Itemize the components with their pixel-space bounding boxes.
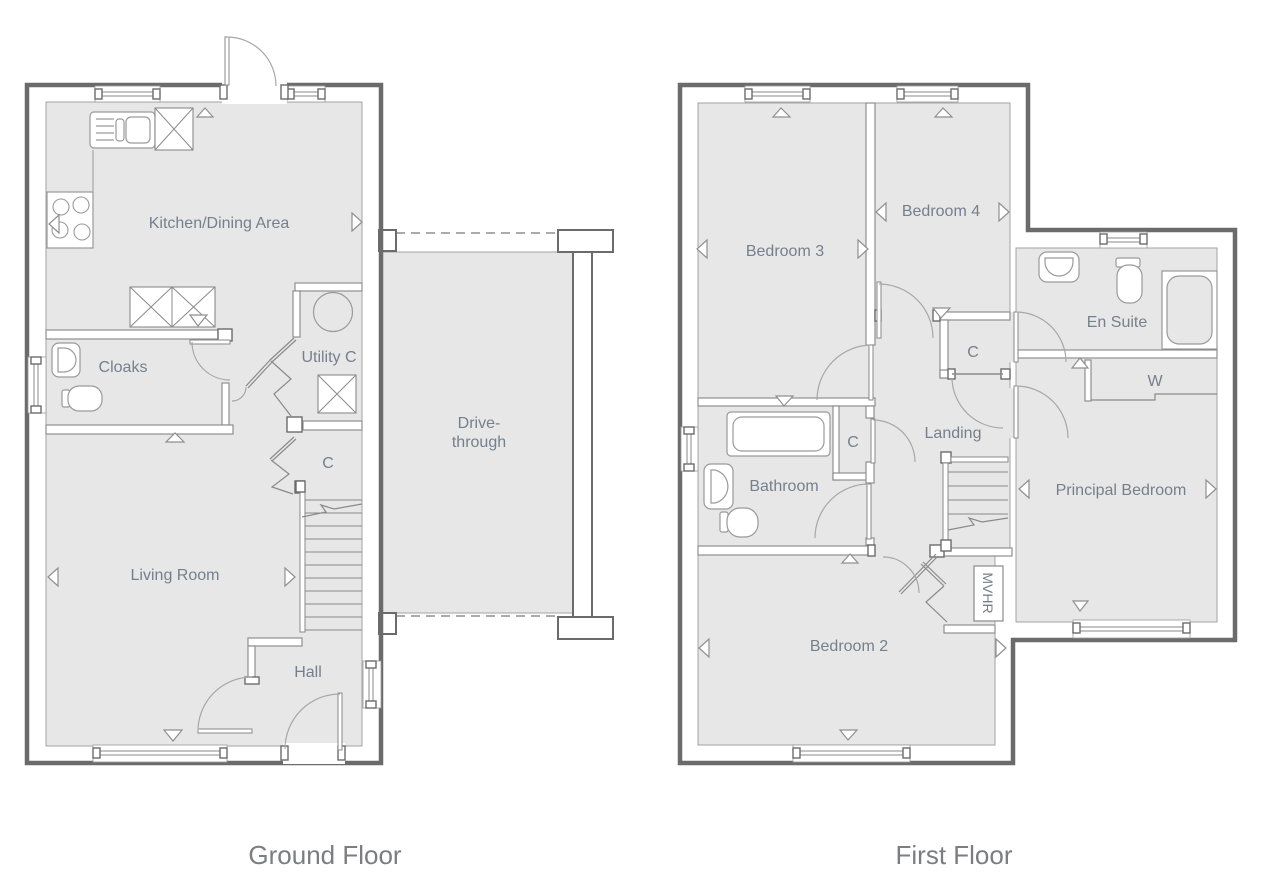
utility-label: Utility C bbox=[301, 349, 356, 366]
first-floor-plan: MVHR bbox=[680, 85, 1235, 870]
bedroom3-label: Bedroom 3 bbox=[746, 243, 824, 260]
shower-icon bbox=[1162, 271, 1217, 349]
ensuite-label: En Suite bbox=[1087, 314, 1148, 331]
principal-bedroom-window bbox=[1073, 620, 1190, 638]
living-room-window bbox=[93, 745, 227, 762]
sink-unit-icon bbox=[90, 112, 155, 148]
utility-appliance-icon bbox=[318, 375, 356, 413]
cloaks-window bbox=[28, 357, 46, 413]
kitchen-window-2 bbox=[287, 86, 325, 102]
bedroom2-window bbox=[793, 745, 910, 762]
bedroom3-window bbox=[745, 86, 810, 102]
ensuite-basin-icon bbox=[1039, 252, 1079, 282]
drive-through-label-line1: Drive- bbox=[458, 415, 501, 432]
ground-floor-caption: Ground Floor bbox=[248, 840, 402, 870]
ground-cupboard-label: C bbox=[322, 455, 334, 472]
bedroom4-window bbox=[897, 86, 958, 102]
first-floor-caption: First Floor bbox=[896, 840, 1013, 870]
appliance-icon bbox=[155, 108, 193, 150]
bath-icon bbox=[727, 412, 830, 456]
floorplan-page: Kitchen/Dining Area Cloaks Utility C C L… bbox=[0, 0, 1277, 872]
kitchen-window-1 bbox=[95, 86, 160, 102]
mvhr-unit-icon: MVHR bbox=[974, 566, 1003, 621]
bedroom2-label: Bedroom 2 bbox=[810, 638, 888, 655]
principal-bedroom-label: Principal Bedroom bbox=[1056, 482, 1187, 499]
wardrobe-label: W bbox=[1147, 373, 1163, 390]
mvhr-label: MVHR bbox=[980, 572, 996, 613]
cloaks-basin-icon bbox=[52, 343, 80, 377]
ensuite-toilet-icon bbox=[1116, 258, 1142, 303]
living-room-label: Living Room bbox=[131, 567, 220, 584]
hall-label: Hall bbox=[294, 664, 322, 681]
bathroom-label: Bathroom bbox=[749, 478, 818, 495]
cupboard-mid-label: C bbox=[847, 434, 859, 451]
bedroom4-label: Bedroom 4 bbox=[902, 203, 980, 220]
entrance-door bbox=[220, 37, 288, 104]
cloaks-toilet-icon bbox=[62, 386, 102, 411]
drive-through-label-line2: through bbox=[452, 434, 506, 451]
hall-window bbox=[363, 661, 381, 708]
landing-label: Landing bbox=[925, 425, 982, 442]
ensuite-window bbox=[1100, 232, 1147, 248]
marker-right-icon bbox=[996, 639, 1006, 657]
cupboard-top-label: C bbox=[967, 344, 979, 361]
ground-floor-plan: Kitchen/Dining Area Cloaks Utility C C L… bbox=[27, 37, 613, 870]
floorplan-drawing: Kitchen/Dining Area Cloaks Utility C C L… bbox=[0, 0, 1277, 872]
bathroom-basin-icon bbox=[704, 464, 733, 509]
cloaks-label: Cloaks bbox=[99, 359, 148, 376]
bathroom-window bbox=[681, 427, 698, 471]
kitchen-label: Kitchen/Dining Area bbox=[149, 215, 290, 232]
